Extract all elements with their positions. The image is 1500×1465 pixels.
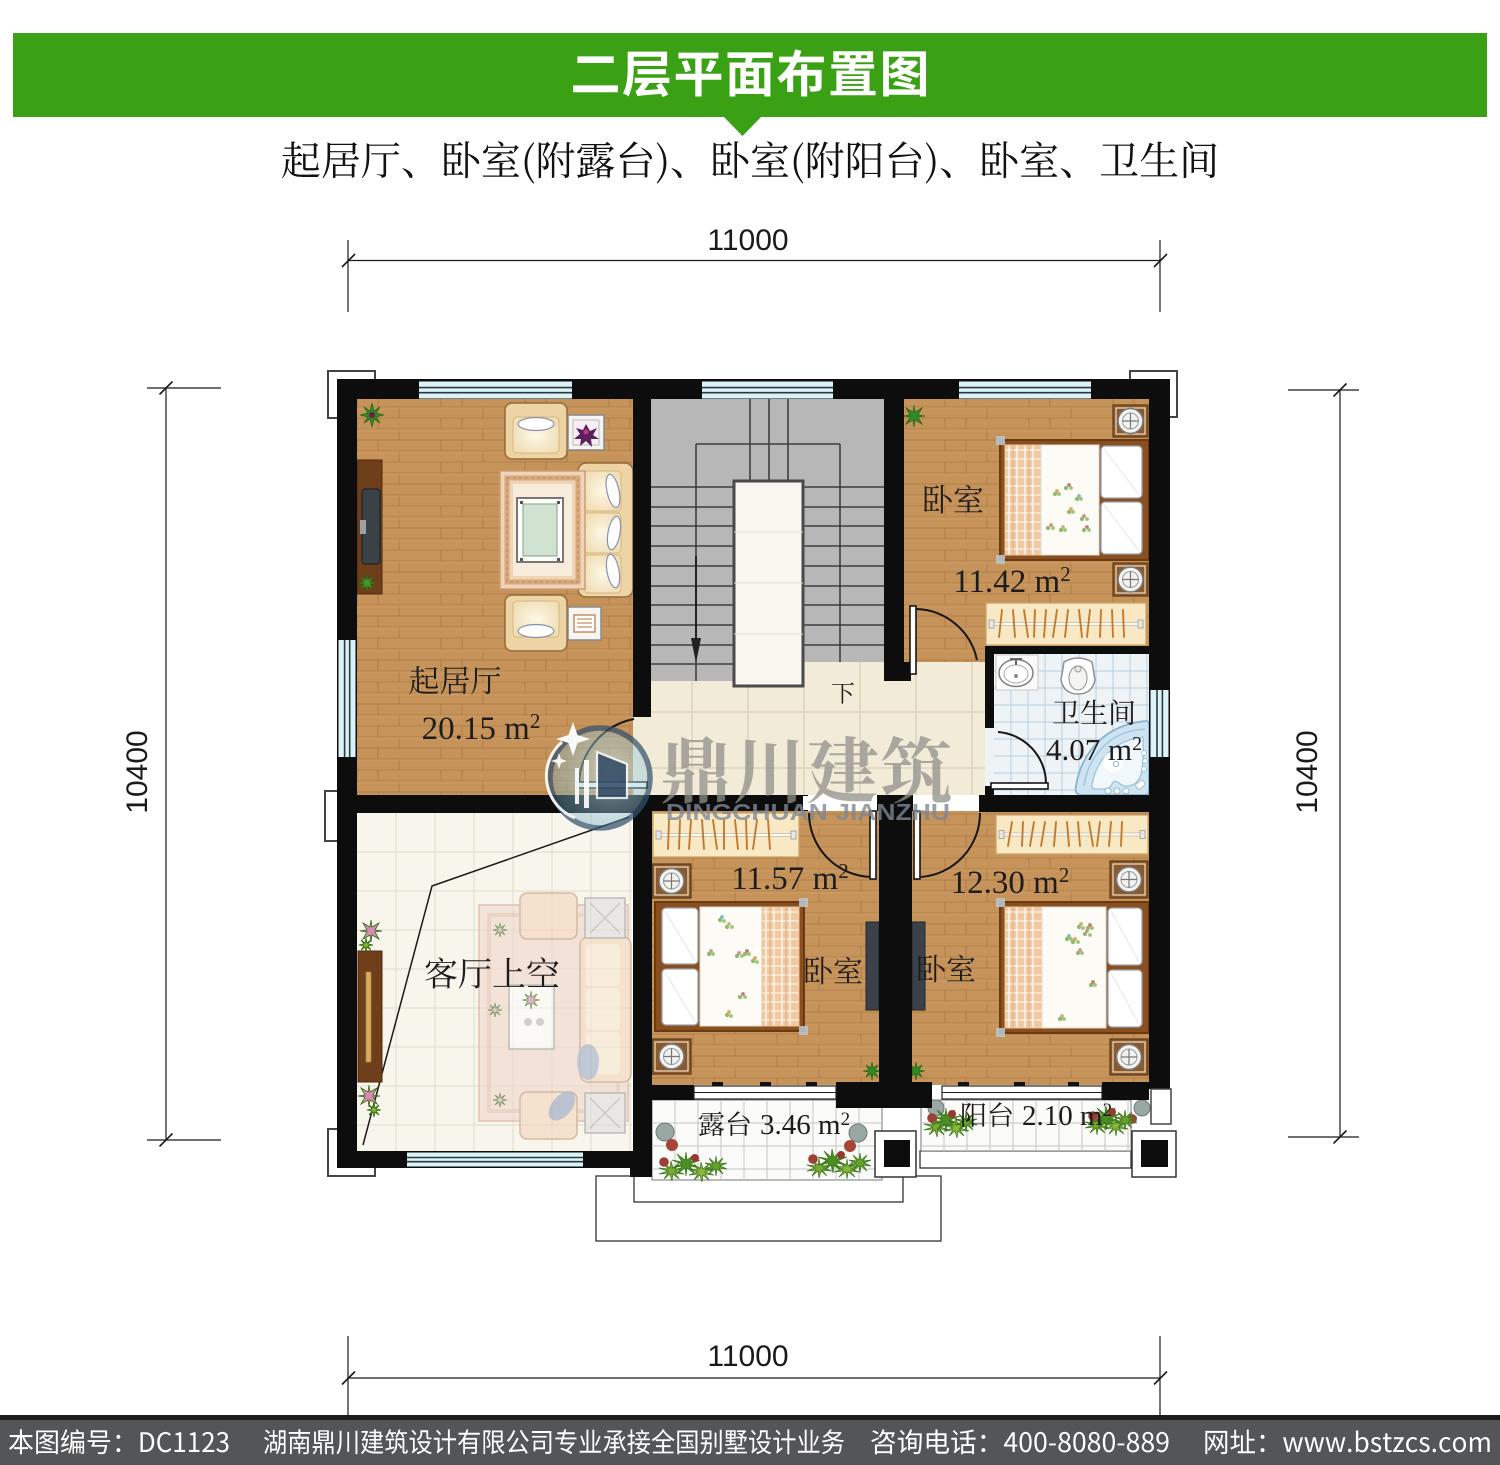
svg-text:2.10 m2: 2.10 m2 <box>1022 1100 1112 1132</box>
svg-text:10400: 10400 <box>121 730 154 813</box>
svg-text:11000: 11000 <box>707 224 788 257</box>
svg-text:10400: 10400 <box>1291 730 1324 813</box>
svg-text:11.42 m2: 11.42 m2 <box>953 562 1070 600</box>
svg-text:11000: 11000 <box>707 1340 788 1373</box>
svg-text:3.46 m2: 3.46 m2 <box>760 1109 850 1141</box>
svg-text:DINGCHUAN JIANZHU: DINGCHUAN JIANZHU <box>666 799 950 825</box>
svg-text:11.57 m2: 11.57 m2 <box>731 859 848 897</box>
svg-text:12.30 m2: 12.30 m2 <box>951 863 1070 901</box>
svg-text:20.15 m2: 20.15 m2 <box>422 709 541 747</box>
svg-text:4.07 m2: 4.07 m2 <box>1046 732 1142 767</box>
